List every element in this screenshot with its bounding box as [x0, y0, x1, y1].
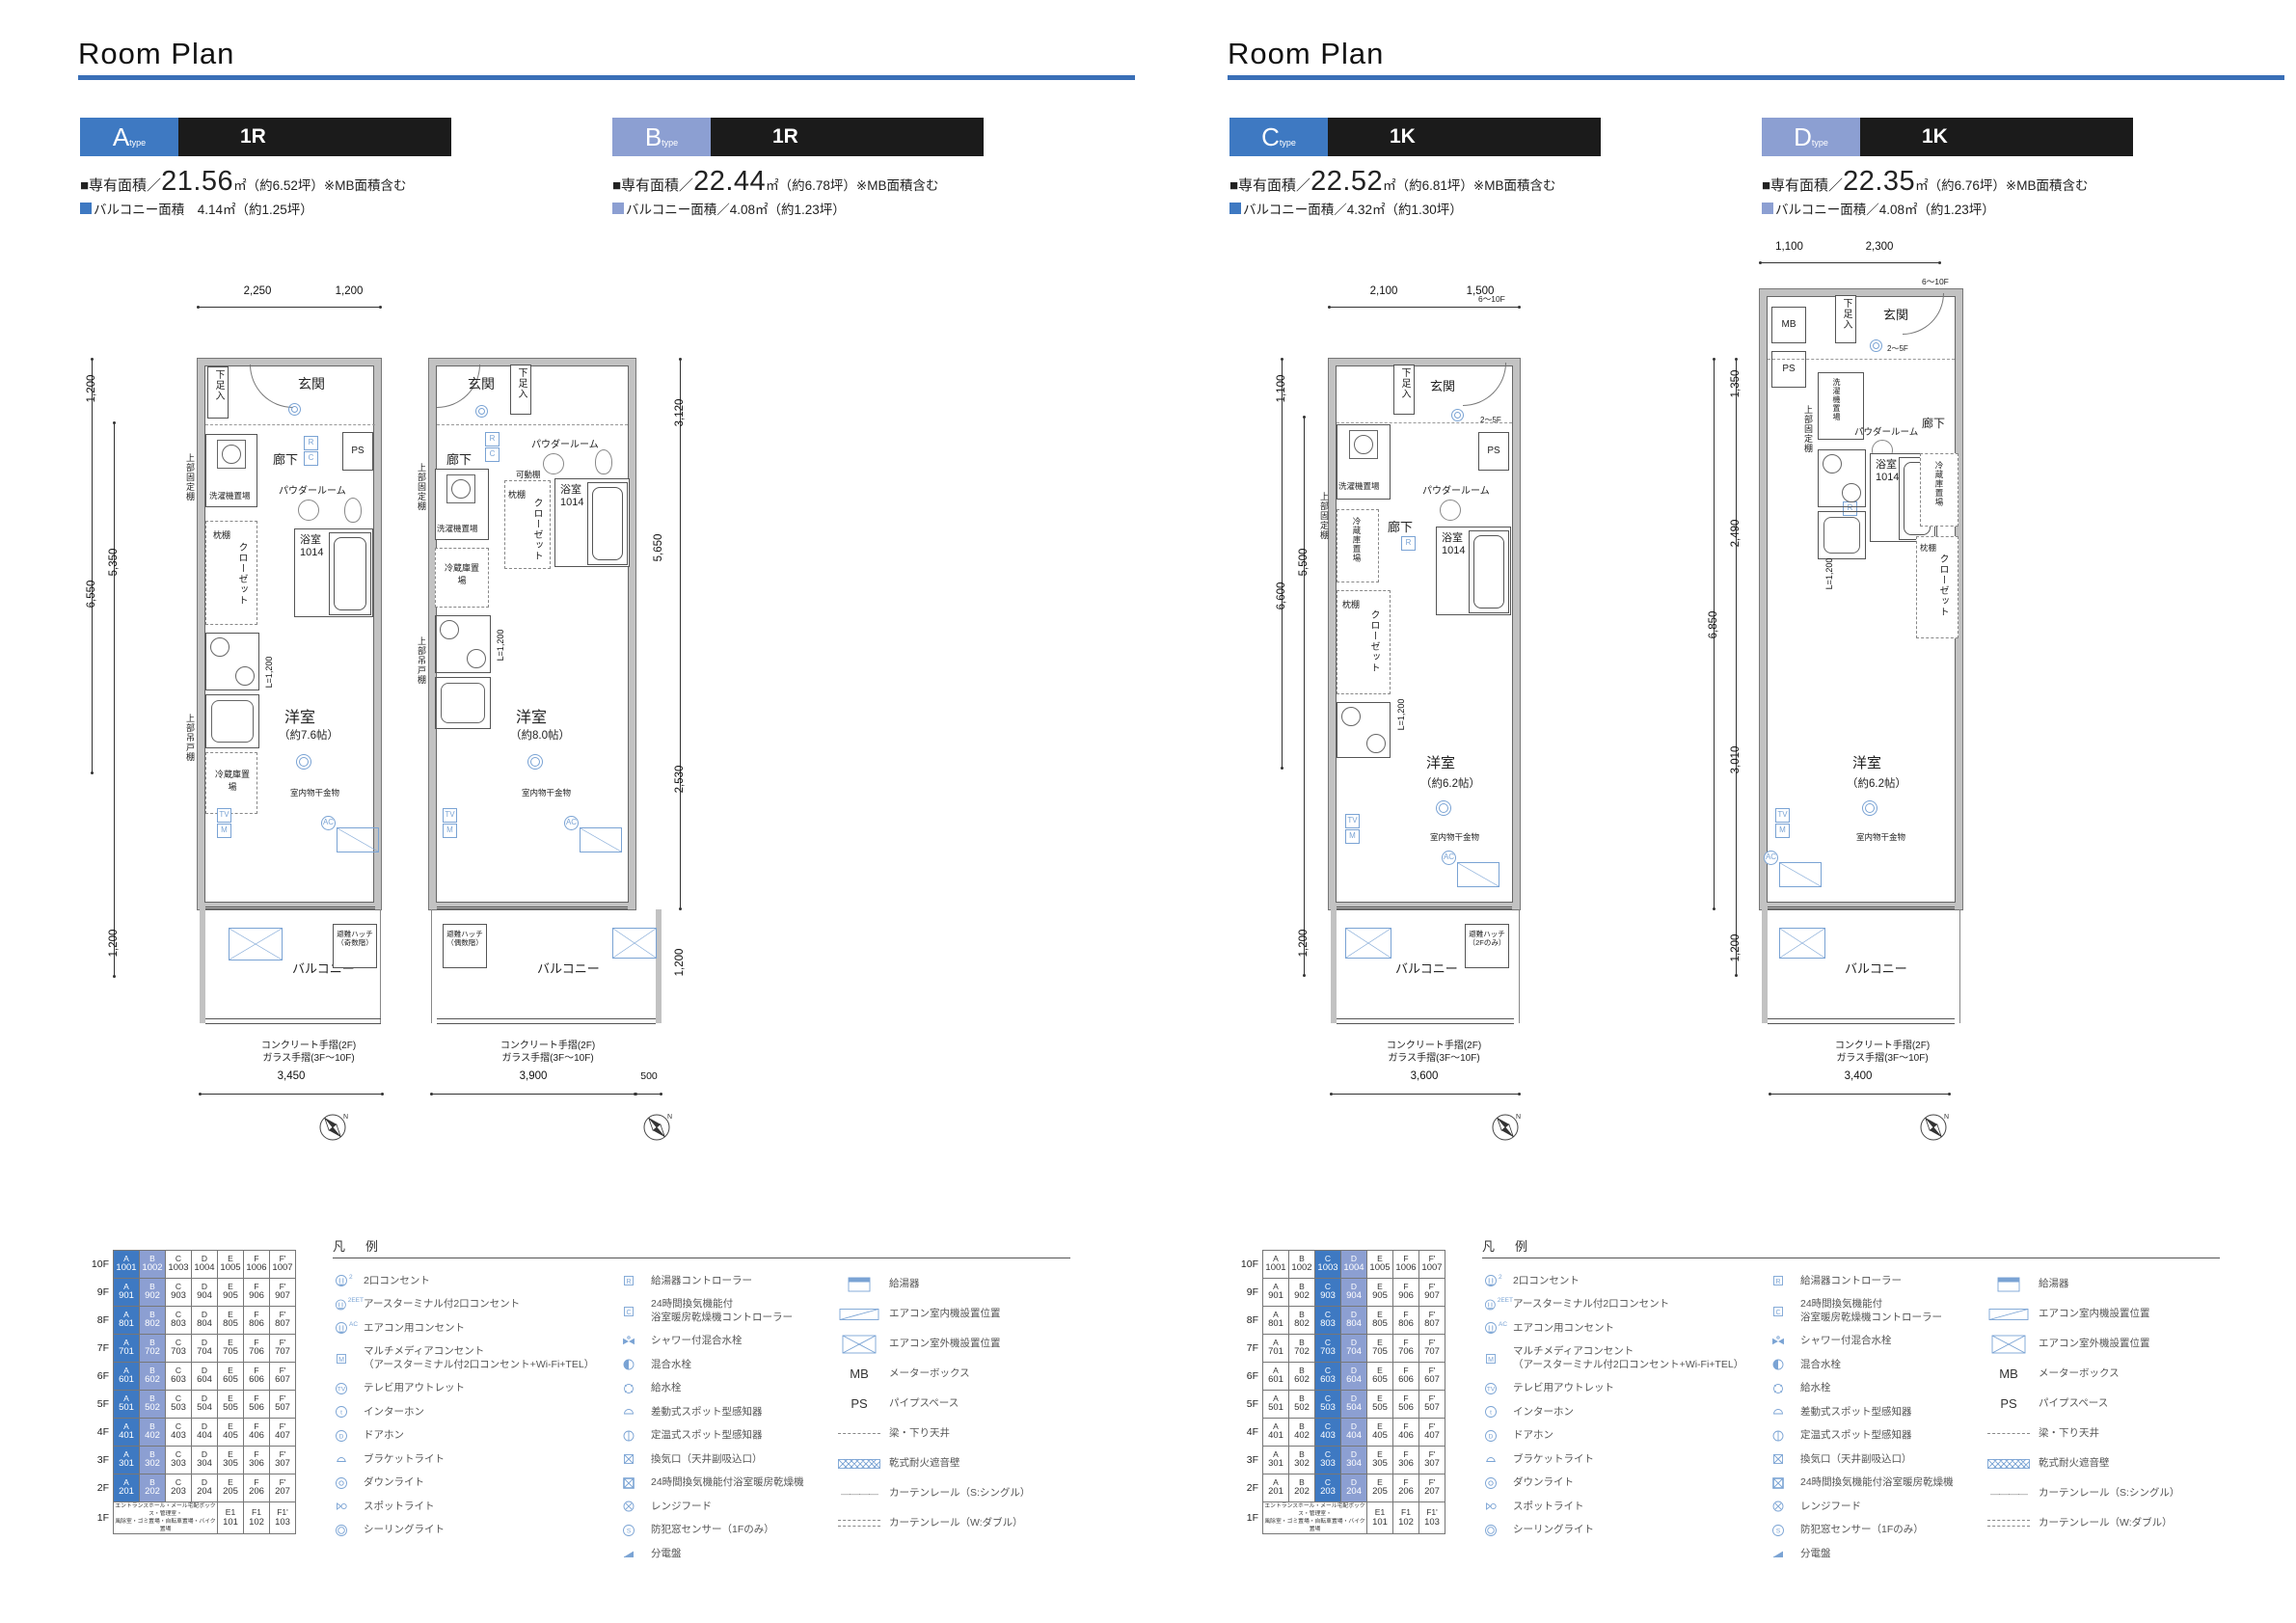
- legend-label: ブラケットライト: [364, 1453, 445, 1466]
- washer-label: 洗濯機置場: [437, 523, 478, 534]
- legend-label: 差動式スポット型感知器: [1800, 1406, 1912, 1419]
- dim-left: 1,100: [1276, 355, 1287, 422]
- pillow-shelf-label: 枕棚: [508, 488, 526, 500]
- kitchen-dim: L=1,200: [264, 638, 274, 706]
- ceil-icon: [1484, 1524, 1513, 1537]
- legend-label: テレビ用アウトレット: [1513, 1382, 1614, 1394]
- dim-bottom: 3,400: [1810, 1070, 1906, 1082]
- unit-cell: D404: [1341, 1419, 1367, 1447]
- area-suffix: ㎡（約6.78坪）※MB面積含む: [766, 175, 938, 194]
- unit-cell: F606: [1393, 1363, 1419, 1391]
- room-size-label: （約6.2帖）: [1420, 775, 1480, 791]
- legend-label: 給湯器: [889, 1278, 920, 1290]
- unit-cell: F306: [244, 1447, 270, 1474]
- legend-label: エアコン室内機設置位置: [889, 1308, 1001, 1320]
- unit-cell: B302: [140, 1447, 166, 1474]
- legend-item: スポットライト: [1484, 1495, 1766, 1519]
- legend-label: エアコン用コンセント: [364, 1322, 465, 1335]
- dim-line: [200, 1094, 383, 1095]
- fridge-label: 冷蔵庫置場: [1933, 461, 1945, 521]
- basin-icon: [543, 453, 564, 474]
- bullet-icon: [612, 203, 624, 214]
- legend-label: ブラケットライト: [1513, 1453, 1594, 1466]
- legend-item: ACエアコン用コンセント: [1484, 1316, 1766, 1340]
- legend-item: 乾式耐火遮音壁: [1979, 1448, 2223, 1478]
- dash-icon: [829, 1433, 889, 1434]
- svg-text:R: R: [1775, 1279, 1780, 1285]
- type-b-balcony-area: バルコニー面積／4.08㎡（約1.23坪）: [612, 199, 846, 218]
- sens-icon: S: [622, 1524, 651, 1537]
- escape-hatch: 避難ハッチ（2Fのみ）: [1465, 924, 1509, 968]
- dim-left: 6,550: [86, 560, 97, 628]
- rbox-icon: R: [622, 1274, 651, 1287]
- unit-cell: E205: [218, 1474, 244, 1502]
- washer-icon: [217, 440, 246, 469]
- basin-icon: [1440, 500, 1461, 521]
- powder-room-label: パウダールーム: [531, 436, 599, 450]
- unit-cell: E405: [218, 1419, 244, 1447]
- legend-label: テレビ用アウトレット: [364, 1382, 465, 1394]
- ac-outlet-icon: AC: [321, 816, 336, 830]
- entrance-label: 玄関: [1430, 376, 1455, 394]
- laundry-hook-label: 室内物干金物: [1856, 831, 1905, 843]
- unit-cell: D1004: [192, 1251, 218, 1279]
- unit-cell: B202: [140, 1474, 166, 1502]
- area-label: ■専有面積／: [1229, 175, 1310, 195]
- area-value: 22.52: [1310, 166, 1383, 198]
- dim-left: 1,350: [1730, 350, 1742, 418]
- legend-item: MBメーターボックス: [829, 1359, 1073, 1389]
- legend-item: Mマルチメディアコンセント（アースターミナル付2口コンセント+Wi-Fi+TEL…: [1484, 1340, 1766, 1377]
- legend-item: 22口コンセント: [335, 1269, 616, 1293]
- floor-label: 1F: [82, 1502, 114, 1534]
- bathtub-icon: [587, 482, 628, 565]
- unit-cell: C403: [1315, 1419, 1341, 1447]
- legend-item: レンジフード: [1771, 1495, 1976, 1519]
- floor-label: 9F: [1231, 1279, 1263, 1307]
- teio-icon: [1771, 1429, 1800, 1443]
- balcony-area-text: バルコニー面積／4.08㎡（約1.23坪）: [626, 199, 846, 218]
- type-d-layout: 1K: [1860, 118, 2133, 156]
- page-title: Room Plan: [1228, 37, 1384, 71]
- type-d-header: Dtype 1K: [1762, 118, 2133, 156]
- ddash-icon: [1979, 1520, 2039, 1527]
- multimedia-icon: M: [1345, 829, 1360, 844]
- bath-label: 浴室1014: [300, 534, 323, 558]
- bullet-icon: [1762, 203, 1773, 214]
- dim-bottom: 500: [632, 1070, 666, 1082]
- floor-row: 9FA901B902C903D904E905F906F'907: [82, 1279, 296, 1307]
- unit-cell: D804: [192, 1307, 218, 1335]
- floor-row: 3FA301B302C303D304E305F306F'307: [1231, 1447, 1445, 1474]
- legend-item: 分電盤: [622, 1542, 826, 1566]
- unit-cell: B902: [1289, 1279, 1315, 1307]
- legend-item: スポットライト: [335, 1495, 616, 1519]
- unit-cell: E905: [1367, 1279, 1393, 1307]
- legend-item: カーテンレール（W:ダブル）: [829, 1508, 1073, 1538]
- unit-cell: F806: [1393, 1307, 1419, 1335]
- legend-label: マルチメディアコンセント（アースターミナル付2口コンセント+Wi-Fi+TEL）: [364, 1345, 594, 1370]
- bullet-icon: [1229, 203, 1241, 214]
- legend-label: シャワー付混合水栓: [1800, 1335, 1892, 1347]
- dim-top: 2,250: [200, 285, 315, 297]
- unit-cell: C903: [1315, 1279, 1341, 1307]
- o2-icon: 2EET: [1484, 1298, 1513, 1312]
- ceiling-light-icon: [475, 405, 488, 418]
- area-value: 21.56: [161, 166, 233, 198]
- vent-icon: [1771, 1452, 1800, 1466]
- dim-line: [114, 422, 115, 977]
- bullet-icon: [80, 203, 92, 214]
- legend-label: 換気口（天井副吸込口）: [1800, 1453, 1912, 1466]
- unit-cell: F306: [1393, 1447, 1419, 1474]
- main-room-label: 洋室: [1426, 752, 1455, 772]
- svg-text:R: R: [626, 1279, 631, 1285]
- page-right: Room Plan Ctype 1K ■専有面積／ 22.52 ㎡（約6.81坪…: [1204, 0, 2294, 1623]
- unit-cell: E905: [218, 1279, 244, 1307]
- unit-cell: F806: [244, 1307, 270, 1335]
- unit-cell: F706: [1393, 1335, 1419, 1363]
- bathtub-icon: [1469, 530, 1509, 613]
- fridge-label: 冷蔵庫置場: [211, 768, 254, 793]
- unit-cell: E305: [218, 1447, 244, 1474]
- legend-label: 乾式耐火遮音壁: [2039, 1457, 2110, 1470]
- legend-item: —·—·—·—カーテンレール（S:シングル）: [1979, 1478, 2223, 1508]
- balcony-label: バルコニー: [1395, 959, 1458, 977]
- unit-cell: D704: [1341, 1335, 1367, 1363]
- legend-label: 防犯窓センサー（1Fのみ）: [651, 1524, 774, 1536]
- floor-row: 6FA601B602C603D604E605F606F'607: [82, 1363, 296, 1391]
- dim-left: 6,600: [1276, 562, 1287, 630]
- dim-left: 5,350: [108, 528, 120, 596]
- unit-cell: E605: [218, 1363, 244, 1391]
- unit-cell: D304: [192, 1447, 218, 1474]
- bund-icon: [622, 1547, 651, 1560]
- unit-cell: E405: [1367, 1419, 1393, 1447]
- water-heater-controller-icon: R: [485, 432, 500, 446]
- floor-label: 8F: [1231, 1307, 1263, 1335]
- dim-left: 1,200: [1730, 914, 1742, 982]
- stove-icon: [435, 615, 491, 673]
- unit-cell: F906: [244, 1279, 270, 1307]
- tv-icon: TV: [335, 1382, 364, 1395]
- rail-note: コンクリート手摺(2F)ガラス手摺(3F〜10F): [1810, 1040, 1955, 1065]
- vent-icon: [622, 1452, 651, 1466]
- dim-left: 3,010: [1730, 726, 1742, 794]
- legend-item: Dドアホン: [1484, 1424, 1766, 1448]
- upper-shelf-label: 上部固定棚: [416, 463, 428, 555]
- corridor-label: 廊下: [1922, 415, 1945, 431]
- legend-item: 給湯器: [1979, 1269, 2223, 1299]
- acin-icon: [1979, 1306, 2039, 1323]
- type-c-badge: Ctype: [1229, 118, 1328, 156]
- floor-row: 5FA501B502C503D504E505F506F'507: [1231, 1391, 1445, 1419]
- unit-cell: F506: [244, 1391, 270, 1419]
- unit-cell: C303: [166, 1447, 192, 1474]
- unit-cell: F1006: [244, 1251, 270, 1279]
- svg-text:t: t: [1490, 1410, 1492, 1417]
- upper-shelf-label: 上部固定棚: [184, 453, 197, 545]
- dim-line: [431, 1094, 635, 1095]
- shoe-box: 下足入: [1393, 365, 1415, 415]
- dim-top: 1,100: [1760, 241, 1819, 253]
- washer-icon: [446, 474, 475, 503]
- svg-text:M: M: [1488, 1356, 1494, 1363]
- legend-label: カーテンレール（W:ダブル）: [889, 1517, 1023, 1529]
- unit-cell: F'707: [1419, 1335, 1445, 1363]
- unit-cell: C203: [1315, 1474, 1341, 1502]
- legend-label: カーテンレール（W:ダブル）: [2039, 1517, 2173, 1529]
- floor-label: 5F: [82, 1391, 114, 1419]
- ground-floor-note: エントランスホール・メール宅配ボックス・管理室・風除室・ゴミ置場・自転車置場・バ…: [1263, 1502, 1367, 1534]
- floor-label: 4F: [82, 1419, 114, 1447]
- legend-rule: [333, 1258, 1070, 1258]
- area-value: 22.44: [693, 166, 766, 198]
- unit-cell: F'507: [1419, 1391, 1445, 1419]
- legend-label: ダウンライト: [1513, 1476, 1574, 1489]
- unit-cell: A1001: [1263, 1251, 1289, 1279]
- legend-label: パイプスペース: [889, 1397, 959, 1410]
- legend-label: アースターミナル付2口コンセント: [364, 1298, 520, 1311]
- ac-outlet-icon: AC: [1764, 851, 1778, 865]
- unit-cell: F'807: [1419, 1307, 1445, 1335]
- legend-item: tインターホン: [1484, 1400, 1766, 1424]
- legend-item: TVテレビ用アウトレット: [1484, 1377, 1766, 1401]
- upper-shelf-label: 上部固定棚: [1802, 405, 1815, 487]
- unit-table: 10FA1001B1002C1003D1004E1005F1006F'10079…: [1231, 1250, 1445, 1534]
- legend-item: 定温式スポット型感知器: [1771, 1424, 1976, 1448]
- ceiling-light-icon: [1870, 339, 1882, 352]
- legend-item: Dドアホン: [335, 1424, 616, 1448]
- unit-cell: F1102: [1393, 1502, 1419, 1534]
- balcony-label: バルコニー: [537, 959, 600, 977]
- corridor-label: 廊下: [273, 449, 298, 468]
- laundry-hook-label: 室内物干金物: [522, 787, 571, 798]
- balcony-area-text: バルコニー面積 4.14㎡（約1.25坪）: [94, 199, 313, 218]
- type-d-balcony-area: バルコニー面積／4.08㎡（約1.23坪）: [1762, 199, 1995, 218]
- title-rule: [78, 75, 1135, 80]
- area-suffix: ㎡（約6.76坪）※MB面積含む: [1915, 175, 2088, 194]
- multimedia-icon: M: [1775, 824, 1790, 838]
- floor-label: 5F: [1231, 1391, 1263, 1419]
- multimedia-icon: M: [217, 824, 231, 838]
- stove-icon: [205, 633, 259, 690]
- water-heater-controller-icon: R: [1401, 536, 1416, 551]
- ac-outdoor-icon: [1779, 928, 1825, 959]
- floor-row: 7FA701B702C703D704E705F706F'707: [1231, 1335, 1445, 1363]
- legend-label: 混合水栓: [651, 1359, 691, 1371]
- unit-cell: B1002: [1289, 1251, 1315, 1279]
- floor-label: 1F: [1231, 1502, 1263, 1534]
- legend-label: カーテンレール（S:シングル）: [889, 1487, 1030, 1500]
- type-c-layout: 1K: [1328, 118, 1601, 156]
- floor-row: 9FA901B902C903D904E905F906F'907: [1231, 1279, 1445, 1307]
- kitchen-dim: L=1,200: [1396, 681, 1406, 748]
- bath-label: 浴室1014: [1876, 459, 1899, 483]
- svg-text:D: D: [1489, 1433, 1494, 1440]
- room-plan-sheet: Room Plan Atype 1R ■専有面積／ 21.56 ㎡（約6.52坪…: [0, 0, 2296, 1623]
- washer-label: 洗濯機置場: [1338, 480, 1380, 492]
- legend-label: 梁・下り天井: [889, 1427, 950, 1440]
- unit-cell: F'207: [270, 1474, 296, 1502]
- unit-cell: E705: [218, 1335, 244, 1363]
- legend-label: アースターミナル付2口コンセント: [1513, 1298, 1669, 1311]
- type-b-layout: 1R: [711, 118, 984, 156]
- water-icon: [622, 1382, 651, 1395]
- rail-note: コンクリート手摺(2F)ガラス手摺(3F〜10F): [475, 1040, 620, 1065]
- unit-cell: D204: [1341, 1474, 1367, 1502]
- dim-line: [635, 1094, 662, 1095]
- type-a-badge: Atype: [80, 118, 178, 156]
- unit-cell: C303: [1315, 1447, 1341, 1474]
- unit-cell: E805: [218, 1307, 244, 1335]
- unit-cell: F906: [1393, 1279, 1419, 1307]
- legend-label: 差動式スポット型感知器: [651, 1406, 763, 1419]
- fridge-label: 冷蔵庫置場: [1351, 517, 1363, 577]
- hatchw-icon: [1979, 1459, 2039, 1469]
- svg-text:TV: TV: [338, 1386, 346, 1393]
- unit-cell: B902: [140, 1279, 166, 1307]
- legend-item: C24時間換気機能付浴室暖房乾燥機コントローラー: [622, 1293, 826, 1330]
- bracket-icon: [335, 1452, 364, 1466]
- type-c-area: ■専有面積／ 22.52 ㎡（約6.81坪）※MB面積含む: [1229, 166, 1555, 198]
- unit-cell: D904: [1341, 1279, 1367, 1307]
- rail-note: コンクリート手摺(2F)ガラス手摺(3F〜10F): [236, 1040, 381, 1065]
- water-icon: [1771, 1382, 1800, 1395]
- floor-row-1f: 1Fエントランスホール・メール宅配ボックス・管理室・風除室・ゴミ置場・自転車置場…: [1231, 1502, 1445, 1534]
- unit-cell: A701: [1263, 1335, 1289, 1363]
- beam-line: [205, 424, 375, 425]
- ac-indoor-icon: [1779, 862, 1822, 887]
- washer-icon: [1349, 430, 1378, 459]
- dim-line: [1304, 417, 1305, 976]
- unit-cell: B302: [1289, 1447, 1315, 1474]
- shoe-box: 下足入: [207, 366, 229, 419]
- powder-room-label: パウダールーム: [279, 482, 346, 497]
- legend-item: エアコン室外機設置位置: [829, 1329, 1073, 1359]
- legend-item: 差動式スポット型感知器: [622, 1400, 826, 1424]
- unit-cell: A201: [1263, 1474, 1289, 1502]
- cbox-icon: C: [622, 1305, 651, 1318]
- ceiling-light-icon: [296, 754, 311, 770]
- bath-label: 浴室1014: [1442, 532, 1465, 556]
- entrance-label: 玄関: [298, 374, 325, 393]
- bath-dryer-controller-icon: C: [485, 447, 500, 462]
- balcony-rail: [1768, 1018, 1955, 1024]
- legend-item: ブラケットライト: [1484, 1447, 1766, 1472]
- dim-line: [1331, 1094, 1520, 1095]
- legend-item: Mマルチメディアコンセント（アースターミナル付2口コンセント+Wi-Fi+TEL…: [335, 1340, 616, 1377]
- entrance-label: 玄関: [468, 374, 495, 393]
- floor-row: 6FA601B602C603D604E605F606F'607: [1231, 1363, 1445, 1391]
- legend-item: エアコン室内機設置位置: [829, 1299, 1073, 1329]
- unit-cell: F406: [244, 1419, 270, 1447]
- floor-row: 2FA201B202C203D204E205F206F'207: [1231, 1474, 1445, 1502]
- unit-cell: F'407: [1419, 1419, 1445, 1447]
- unit-cell: D904: [192, 1279, 218, 1307]
- ac-indoor-icon: [580, 827, 622, 852]
- ground-floor-note: エントランスホール・メール宅配ボックス・管理室・風除室・ゴミ置場・自転車置場・バ…: [114, 1502, 218, 1534]
- bracket-icon: [1484, 1452, 1513, 1466]
- type-c-balcony-area: バルコニー面積／4.32㎡（約1.30坪）: [1229, 199, 1463, 218]
- escape-hatch: 避難ハッチ（偶数階）: [443, 924, 487, 968]
- page-title: Room Plan: [78, 37, 234, 71]
- balcony-area-text: バルコニー面積／4.32㎡（約1.30坪）: [1243, 199, 1463, 218]
- dim-left: 5,500: [1298, 528, 1310, 596]
- legend-item: MBメーターボックス: [1979, 1359, 2223, 1389]
- legend-item: 定温式スポット型感知器: [622, 1424, 826, 1448]
- svg-text:D: D: [339, 1433, 344, 1440]
- ac-outdoor-icon: [612, 928, 657, 959]
- legend-title: 凡 例: [333, 1236, 382, 1255]
- legend-item: 22口コンセント: [1484, 1269, 1766, 1293]
- ddash-icon: [829, 1520, 889, 1527]
- water-heater-controller-icon: R: [304, 436, 318, 450]
- legend-label: 混合水栓: [1800, 1359, 1841, 1371]
- unit-cell: C803: [166, 1307, 192, 1335]
- legend-item: S防犯窓センサー（1Fのみ）: [1771, 1519, 1976, 1543]
- stove-icon: [1818, 449, 1866, 507]
- pillow-shelf-label: 枕棚: [1342, 598, 1360, 610]
- floor-row: 2FA201B202C203D204E205F206F'207: [82, 1474, 296, 1502]
- dim-left: 2,490: [1730, 500, 1742, 567]
- unit-cell: F1006: [1393, 1251, 1419, 1279]
- legend-label: カーテンレール（S:シングル）: [2039, 1487, 2179, 1500]
- legend-label: エアコン用コンセント: [1513, 1322, 1614, 1335]
- page-left: Room Plan Atype 1R ■専有面積／ 21.56 ㎡（約6.52坪…: [55, 0, 1145, 1623]
- unit-cell: C703: [1315, 1335, 1341, 1363]
- balcony-area-text: バルコニー面積／4.08㎡（約1.23坪）: [1775, 199, 1995, 218]
- unit-cell: D204: [192, 1474, 218, 1502]
- legend-label: スポットライト: [1513, 1501, 1584, 1513]
- legend-item: PSパイプスペース: [829, 1389, 1073, 1419]
- legend-label: 梁・下り天井: [2039, 1427, 2099, 1440]
- toilet-icon: [344, 498, 362, 523]
- area-label: ■専有面積／: [1762, 175, 1843, 195]
- ceiling-light-icon: [1451, 409, 1464, 421]
- dim-left: 6,850: [1708, 591, 1719, 659]
- ceiling-light-icon: [288, 403, 301, 416]
- beam-line: [1337, 422, 1512, 423]
- floor-label: 2F: [1231, 1474, 1263, 1502]
- compass-icon: N: [1918, 1111, 1951, 1144]
- floor-range-note: 6〜10F: [1922, 276, 1949, 287]
- unit-cell: A1001: [114, 1251, 140, 1279]
- unit-cell: A401: [1263, 1419, 1289, 1447]
- legend-label: ダウンライト: [364, 1476, 424, 1489]
- unit-cell: C903: [166, 1279, 192, 1307]
- main-room-label: 洋室: [516, 704, 547, 727]
- unit-cell: F'207: [1419, 1474, 1445, 1502]
- dim-top: 2,100: [1336, 285, 1432, 297]
- legend-label: シャワー付混合水栓: [651, 1335, 743, 1347]
- o2-icon: 2: [1484, 1274, 1513, 1287]
- floor-row: 7FA701B702C703D704E705F706F'707: [82, 1335, 296, 1363]
- unit-cell: F'607: [1419, 1363, 1445, 1391]
- tv-outlet-icon: TV: [1775, 808, 1790, 823]
- unit-cell: D1004: [1341, 1251, 1367, 1279]
- dashdot-icon: —·—·—·—: [829, 1489, 889, 1499]
- unit-cell: D504: [192, 1391, 218, 1419]
- unit-cell: E305: [1367, 1447, 1393, 1474]
- type-b-badge: Btype: [612, 118, 711, 156]
- unit-cell: F1'103: [270, 1502, 296, 1534]
- dim-top: 1,200: [308, 285, 391, 297]
- corridor-label: 廊下: [446, 449, 472, 468]
- floor-label: 10F: [1231, 1251, 1263, 1279]
- ceil-icon: [335, 1524, 364, 1537]
- legend-item: ダウンライト: [1484, 1472, 1766, 1496]
